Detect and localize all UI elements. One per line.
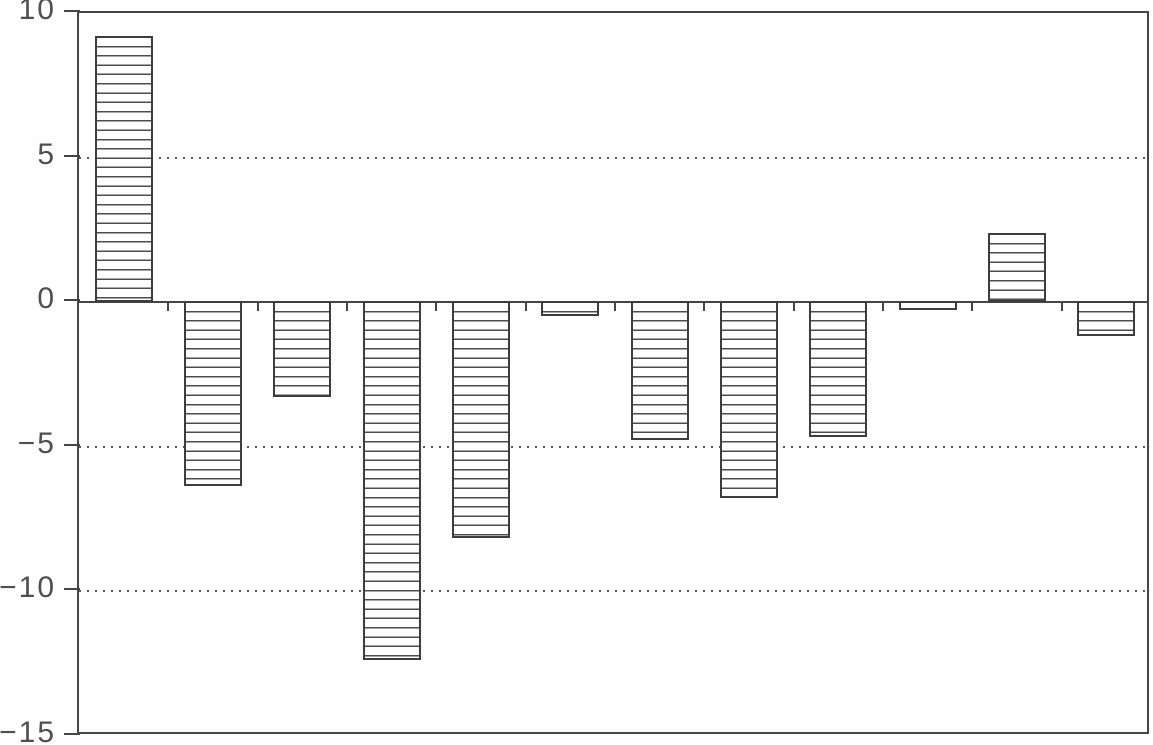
y-axis-tick (64, 299, 80, 301)
bar-10 (899, 301, 957, 310)
y-axis-tick (64, 444, 80, 446)
bar-2 (184, 301, 242, 486)
y-axis-tick (64, 733, 80, 735)
gridline-5 (79, 157, 1147, 159)
x-axis-tick (1061, 302, 1063, 311)
x-axis-tick (971, 302, 973, 311)
y-axis-tick (64, 588, 80, 590)
bar-8 (720, 301, 778, 498)
bar-12 (1077, 301, 1135, 336)
x-axis-tick (614, 302, 616, 311)
bar-3 (273, 301, 331, 396)
y-axis-tick (64, 10, 80, 12)
x-axis-tick (257, 302, 259, 311)
y-tick-label-10: 10 (19, 0, 56, 25)
y-tick-label-0: 0 (37, 284, 56, 314)
plot-area (77, 11, 1149, 734)
bar-1 (95, 36, 153, 302)
y-axis-tick (64, 155, 80, 157)
gridline--10 (79, 590, 1147, 592)
y-tick-label--15: −15 (0, 718, 56, 745)
bar-11 (988, 233, 1046, 302)
bar-chart: 1050−5−10−15 (0, 0, 1153, 745)
x-axis-tick (346, 302, 348, 311)
bar-7 (631, 301, 689, 440)
y-tick-label--10: −10 (0, 573, 56, 603)
x-axis-tick (703, 302, 705, 311)
y-tick-label-5: 5 (37, 139, 56, 169)
x-axis-tick (435, 302, 437, 311)
bar-5 (452, 301, 510, 538)
y-tick-label--5: −5 (18, 429, 56, 459)
x-axis-tick (882, 302, 884, 311)
bar-6 (541, 301, 599, 315)
x-axis-tick (167, 302, 169, 311)
bar-9 (809, 301, 867, 437)
x-axis-tick (525, 302, 527, 311)
x-axis-tick (793, 302, 795, 311)
bar-4 (363, 301, 421, 660)
